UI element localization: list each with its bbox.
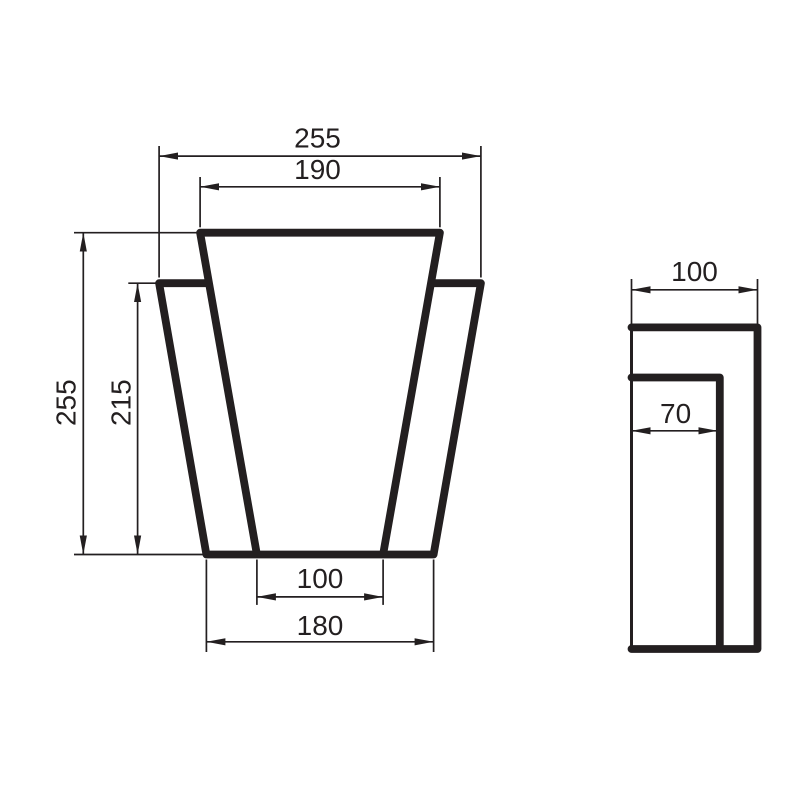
svg-text:100: 100 xyxy=(297,563,344,594)
svg-text:255: 255 xyxy=(51,379,82,426)
svg-text:70: 70 xyxy=(660,398,691,429)
svg-text:190: 190 xyxy=(294,154,341,185)
svg-text:100: 100 xyxy=(671,256,718,287)
svg-text:180: 180 xyxy=(297,610,344,641)
svg-text:215: 215 xyxy=(105,379,136,426)
svg-text:255: 255 xyxy=(294,122,341,153)
